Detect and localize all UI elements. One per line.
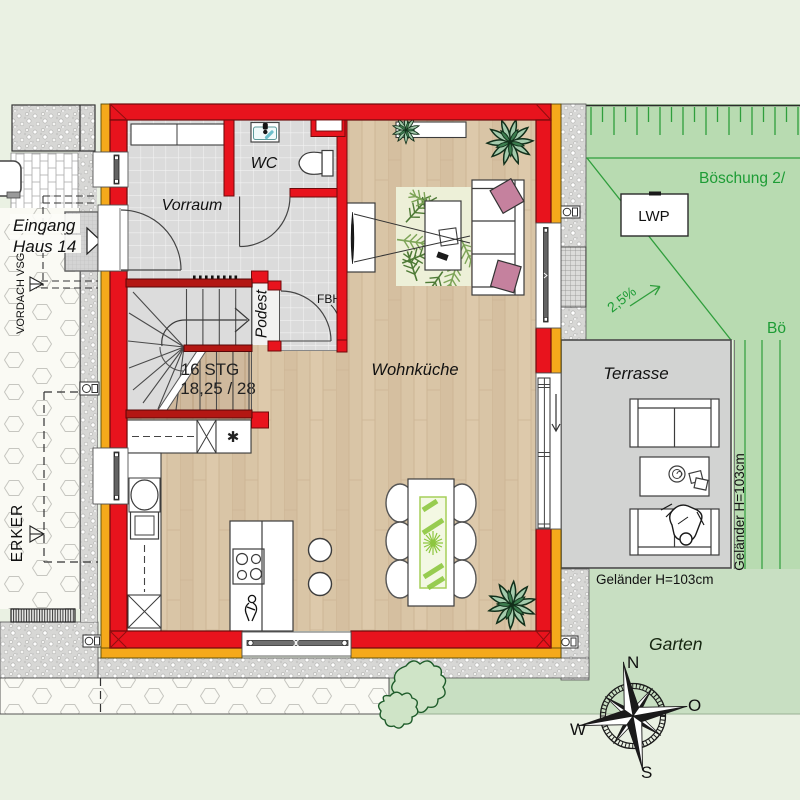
svg-text:Geländer H=103cm: Geländer H=103cm [732,453,747,570]
svg-text:VORDACH VSG: VORDACH VSG [15,253,27,334]
svg-text:Terrasse: Terrasse [603,364,669,383]
svg-text:LWP: LWP [638,208,669,225]
svg-text:WC: WC [251,155,278,172]
svg-text:Böschung 2/: Böschung 2/ [699,170,786,187]
svg-text:Geländer H=103cm: Geländer H=103cm [596,572,713,587]
svg-text:Bö: Bö [767,320,786,337]
svg-text:18,25 / 28: 18,25 / 28 [180,379,256,398]
svg-text:ERKER: ERKER [9,504,26,562]
svg-text:16 STG: 16 STG [181,360,240,379]
svg-text:Wohnküche: Wohnküche [371,361,458,379]
svg-text:W: W [570,720,586,739]
svg-text:Vorraum: Vorraum [162,197,223,214]
svg-text:Eingang: Eingang [13,216,76,235]
svg-text:Podest: Podest [254,289,271,338]
svg-text:S: S [641,763,652,782]
svg-text:N: N [627,653,639,672]
svg-text:✱: ✱ [227,429,240,446]
svg-text:O: O [688,696,701,715]
svg-text:Garten: Garten [649,634,703,654]
